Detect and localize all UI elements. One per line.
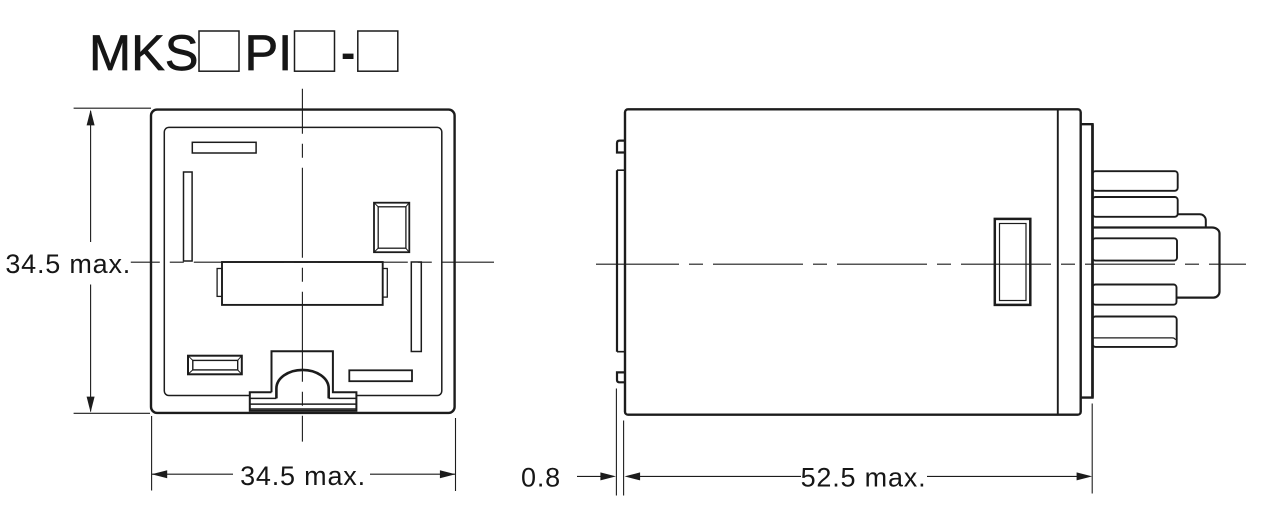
svg-text:52.5 max.: 52.5 max. [801,462,927,492]
svg-text:PI: PI [245,24,293,81]
svg-text:34.5 max.: 34.5 max. [5,249,131,279]
svg-text:MKS: MKS [89,24,198,81]
svg-text:34.5 max.: 34.5 max. [240,461,366,491]
svg-text:0.8: 0.8 [521,462,561,492]
